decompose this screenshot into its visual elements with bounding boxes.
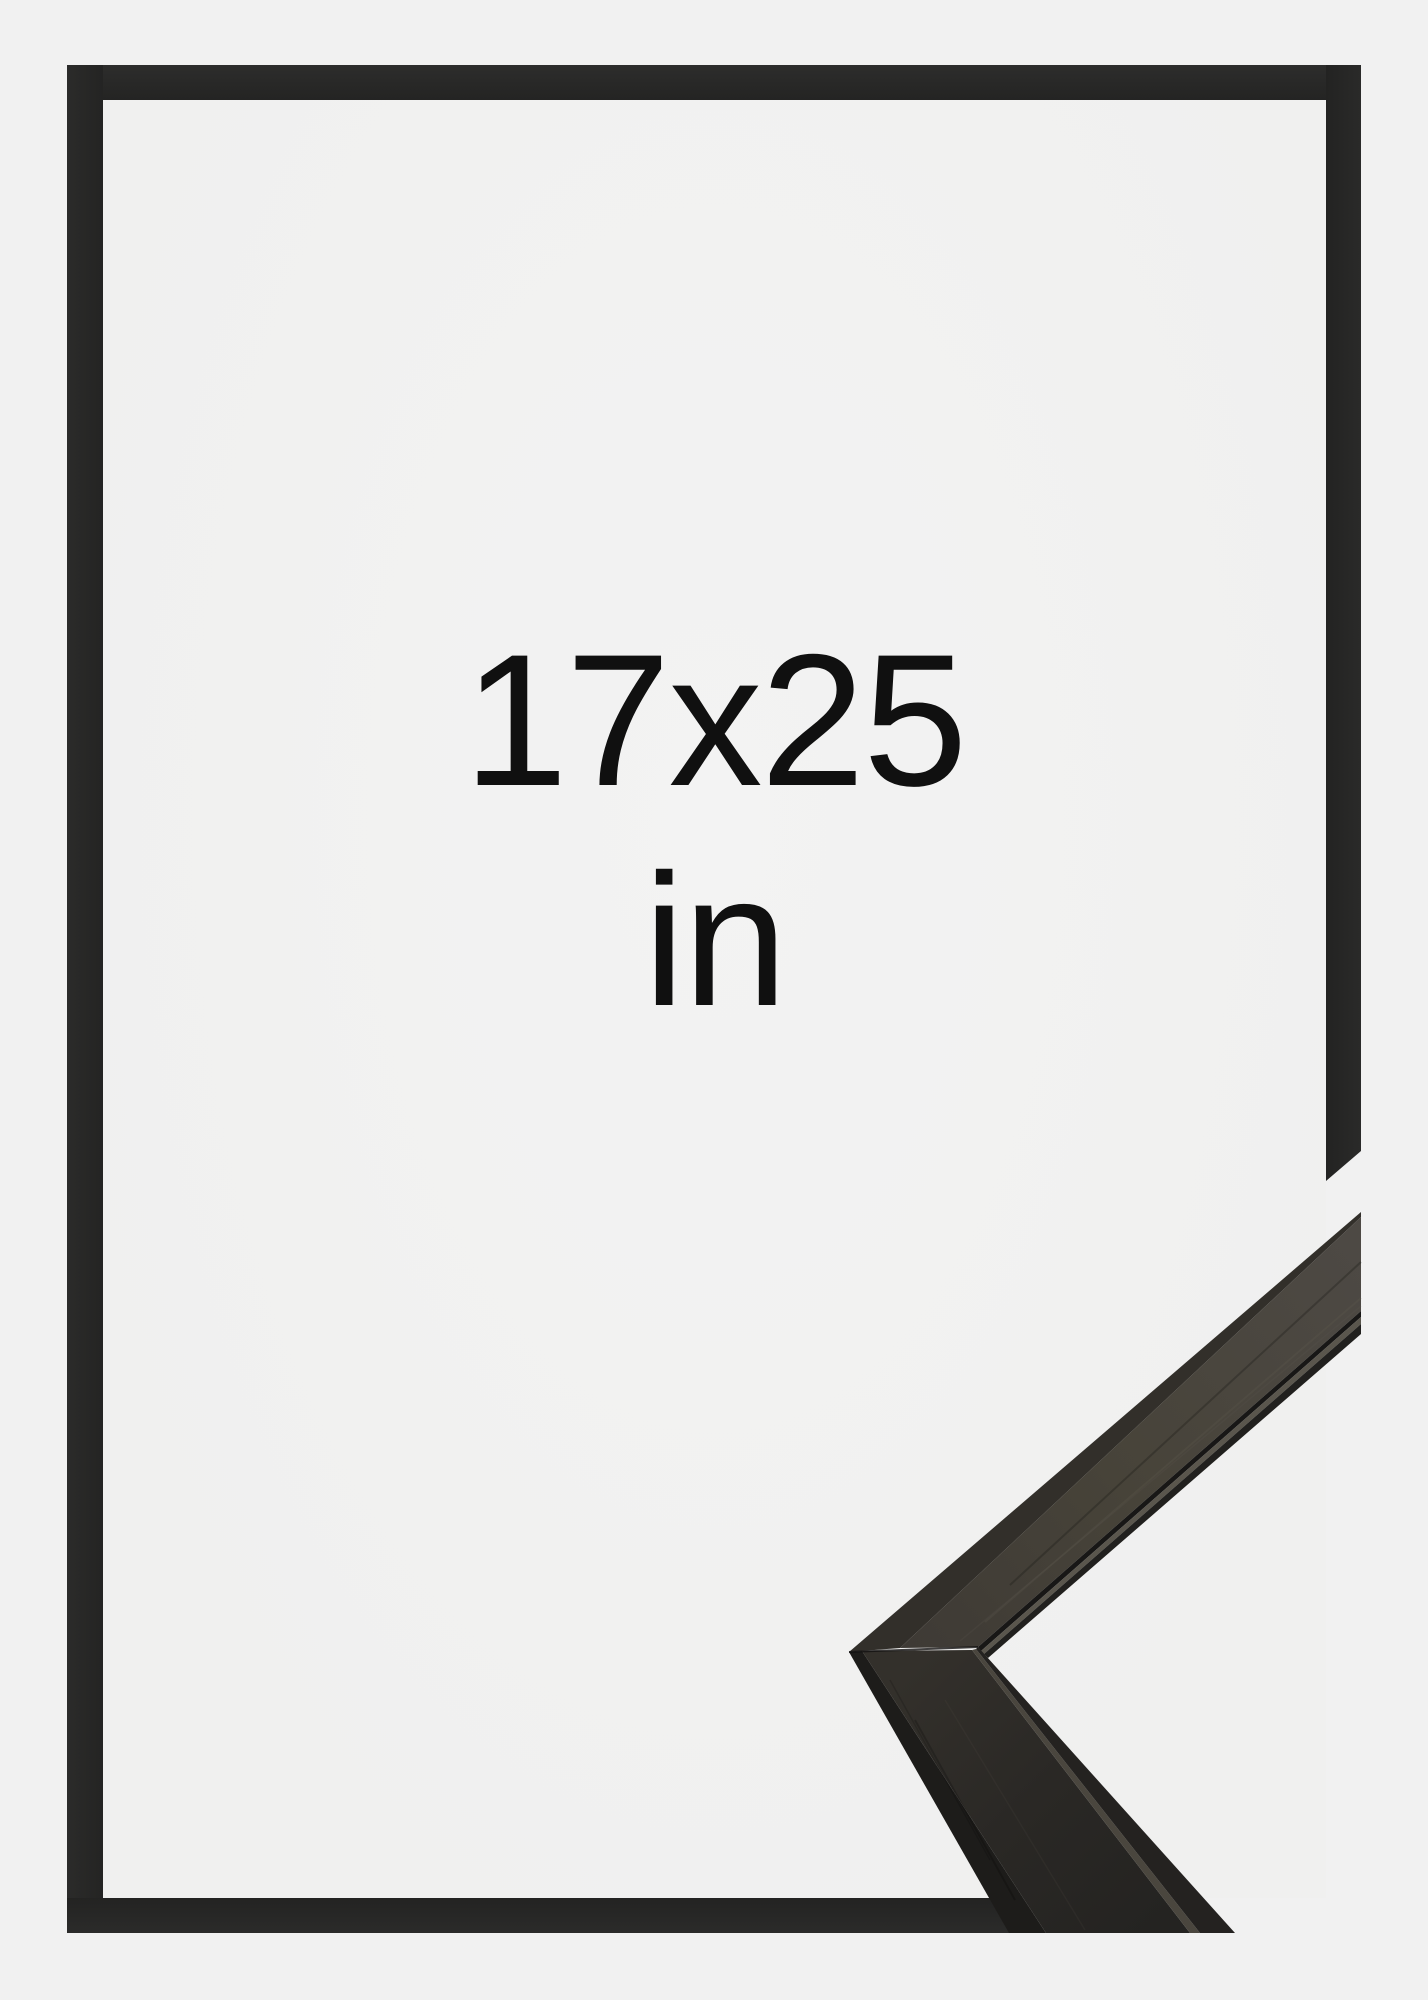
product-image: 17x25 in [0, 0, 1428, 2000]
size-unit-text: in [103, 830, 1326, 1050]
frame-right-border [1326, 65, 1361, 1181]
frame-bottom-border [67, 1898, 1031, 1933]
size-dimensions-text: 17x25 [103, 610, 1326, 830]
frame-front-view: 17x25 in [0, 0, 1428, 2000]
size-label: 17x25 in [103, 610, 1326, 1050]
frame-top-border [67, 65, 1361, 100]
frame-left-border [67, 65, 103, 1933]
